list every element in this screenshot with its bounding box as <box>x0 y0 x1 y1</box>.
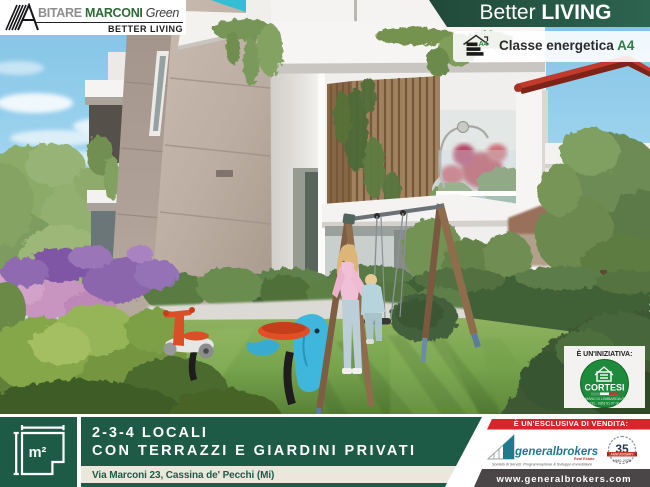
svg-text:ANNIVERSARY: ANNIVERSARY <box>611 453 635 457</box>
svg-text:1990-2025: 1990-2025 <box>613 459 631 463</box>
svg-text:Società di Servizi, Programmaz: Società di Servizi, Programmazione & Svi… <box>492 463 592 467</box>
svg-text:ROMANO DI LOMBARDIA (BG): ROMANO DI LOMBARDIA (BG) <box>580 397 628 401</box>
svg-text:TEL. 0363 91 07 00: TEL. 0363 91 07 00 <box>590 402 620 406</box>
svg-text:m²: m² <box>29 445 47 461</box>
svg-text:A4: A4 <box>479 39 489 48</box>
svg-text:Real Estate: Real Estate <box>574 457 594 461</box>
svg-text:CORTESI: CORTESI <box>584 383 624 393</box>
